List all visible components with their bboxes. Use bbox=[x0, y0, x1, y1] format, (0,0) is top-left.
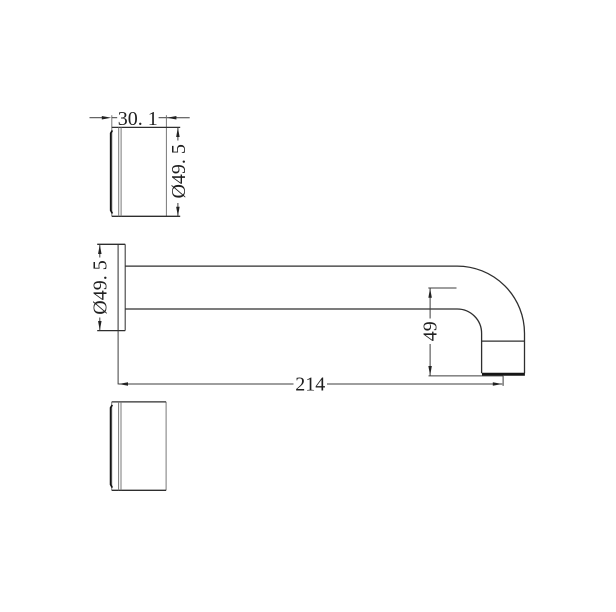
svg-text:30. 1: 30. 1 bbox=[118, 108, 158, 130]
svg-text:Ø49. 5: Ø49. 5 bbox=[90, 260, 112, 314]
svg-text:214: 214 bbox=[295, 374, 325, 396]
svg-text:49: 49 bbox=[420, 321, 442, 341]
svg-text:Ø49. 5: Ø49. 5 bbox=[168, 144, 190, 198]
